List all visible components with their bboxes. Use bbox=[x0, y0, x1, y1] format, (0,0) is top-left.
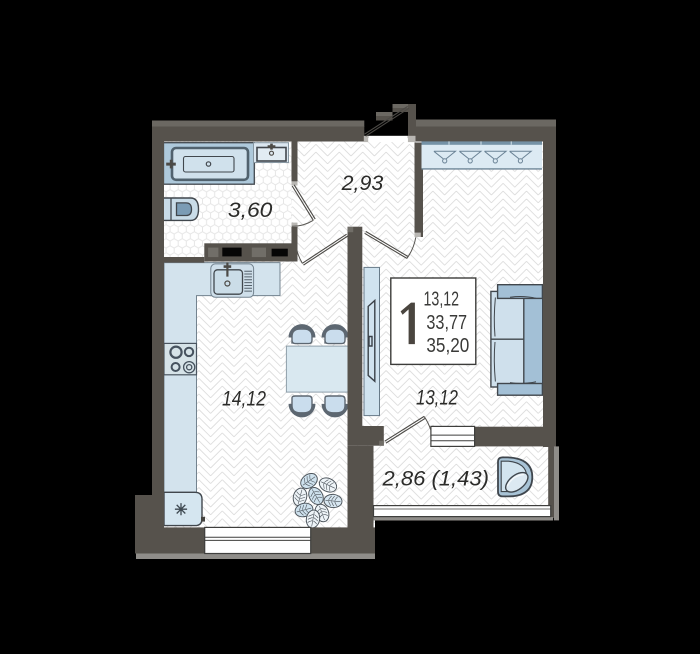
svg-text:14,12: 14,12 bbox=[222, 388, 266, 411]
svg-text:13,12: 13,12 bbox=[424, 289, 460, 311]
svg-text:2,93: 2,93 bbox=[341, 172, 384, 195]
svg-text:33,77: 33,77 bbox=[426, 312, 467, 334]
svg-text:2,86 (1,43): 2,86 (1,43) bbox=[381, 468, 489, 491]
svg-text:13,12: 13,12 bbox=[416, 387, 458, 410]
svg-text:35,20: 35,20 bbox=[426, 335, 469, 357]
svg-text:3,60: 3,60 bbox=[228, 199, 273, 222]
